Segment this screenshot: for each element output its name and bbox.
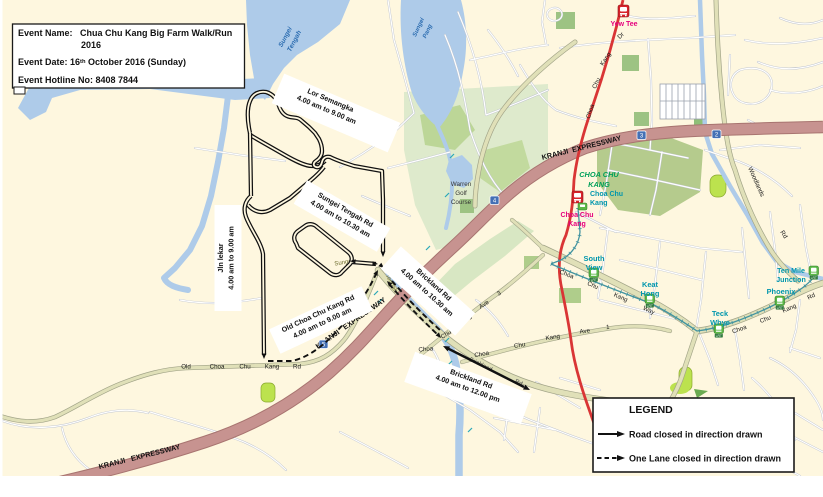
svg-text:Choa Chu: Choa Chu (590, 191, 623, 198)
svg-text:Chu: Chu (239, 364, 251, 371)
svg-text:Golf: Golf (455, 190, 467, 197)
svg-text:Road closed in direction drawn: Road closed in direction drawn (629, 430, 763, 440)
svg-text:LRT: LRT (591, 278, 597, 282)
svg-text:View: View (586, 263, 603, 272)
svg-text:Event Hotline No: 8408 7844: Event Hotline No: 8408 7844 (18, 75, 138, 85)
svg-text:Kang: Kang (265, 364, 280, 371)
svg-text:One Lane closed in direction d: One Lane closed in direction drawn (629, 454, 781, 464)
svg-text:South: South (584, 254, 605, 263)
svg-text:Ave: Ave (579, 327, 591, 335)
svg-text:Junction: Junction (776, 276, 806, 284)
svg-text:Kang: Kang (590, 200, 608, 207)
svg-text:KANG: KANG (588, 180, 610, 189)
svg-text:LRT: LRT (811, 276, 817, 280)
svg-text:Whye: Whye (710, 318, 730, 327)
svg-text:Choa Chu: Choa Chu (560, 212, 593, 219)
svg-text:Yew Tee: Yew Tee (610, 21, 637, 28)
svg-text:Rd: Rd (293, 364, 301, 371)
svg-text:Old: Old (181, 364, 191, 371)
svg-text:LRT: LRT (716, 334, 722, 338)
svg-text:Choa: Choa (210, 364, 225, 371)
svg-text:LRT: LRT (647, 304, 653, 308)
svg-text:Course: Course (451, 199, 472, 206)
svg-text:Phoenix: Phoenix (767, 287, 797, 296)
svg-text:LEGEND: LEGEND (629, 404, 673, 416)
svg-text:4.00 am to 9.00 am: 4.00 am to 9.00 am (226, 226, 235, 290)
svg-text:Ten Mile: Ten Mile (777, 267, 805, 275)
svg-text:Choa: Choa (418, 345, 434, 353)
svg-text:Warren: Warren (451, 181, 472, 188)
svg-text:Teck: Teck (712, 309, 729, 318)
svg-text:Hong: Hong (641, 289, 660, 298)
svg-text:Event Date: 16th October 2016: Event Date: 16th October 2016 (Sunday) (18, 57, 186, 67)
svg-text:2016: 2016 (81, 40, 101, 50)
svg-text:Event Name: Chua Chu Kang Bi: Event Name: Chua Chu Kang Big Farm Walk/… (18, 28, 232, 38)
svg-text:Jln lekar: Jln lekar (216, 243, 225, 272)
svg-text:Kang: Kang (568, 221, 586, 228)
svg-text:LRT: LRT (777, 306, 783, 310)
svg-text:Keat: Keat (642, 280, 659, 289)
svg-text:CHOA CHU: CHOA CHU (579, 170, 619, 179)
